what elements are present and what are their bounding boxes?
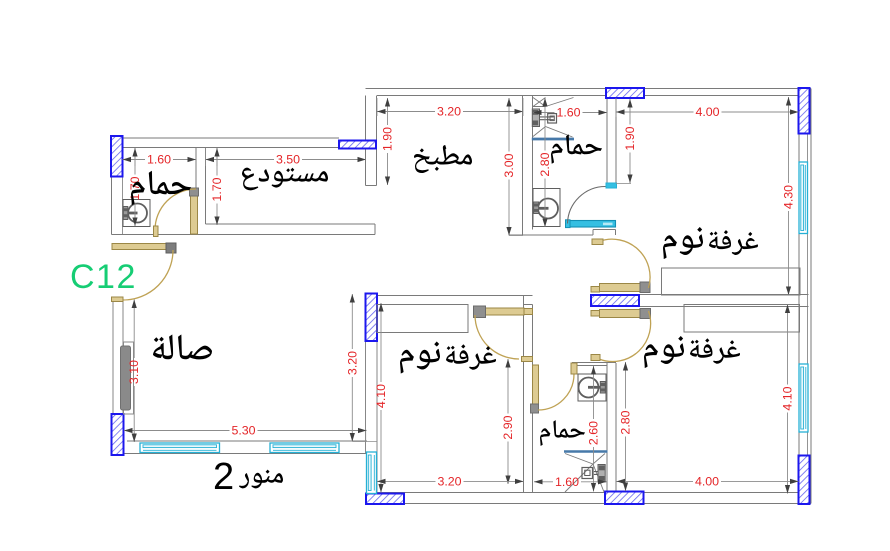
svg-text:1.70: 1.70 bbox=[128, 176, 142, 200]
svg-text:4.10: 4.10 bbox=[374, 384, 388, 408]
svg-text:2: 2 bbox=[213, 456, 234, 498]
svg-text:C12: C12 bbox=[70, 258, 137, 296]
svg-text:1.60: 1.60 bbox=[147, 153, 171, 167]
svg-text:2.80: 2.80 bbox=[538, 152, 552, 176]
svg-text:4.00: 4.00 bbox=[695, 474, 719, 488]
svg-text:4.30: 4.30 bbox=[782, 185, 796, 209]
svg-text:1.70: 1.70 bbox=[210, 177, 224, 201]
svg-text:2.90: 2.90 bbox=[501, 415, 515, 439]
svg-text:5.30: 5.30 bbox=[231, 424, 255, 438]
svg-text:1.90: 1.90 bbox=[381, 127, 395, 151]
svg-text:4.10: 4.10 bbox=[781, 386, 795, 410]
svg-text:3.00: 3.00 bbox=[502, 153, 516, 177]
svg-text:1.60: 1.60 bbox=[556, 106, 580, 120]
svg-text:4.00: 4.00 bbox=[695, 105, 719, 119]
svg-text:3.10: 3.10 bbox=[127, 360, 141, 384]
svg-text:1.90: 1.90 bbox=[623, 126, 637, 150]
svg-text:3.50: 3.50 bbox=[276, 153, 300, 167]
svg-text:2.80: 2.80 bbox=[619, 410, 633, 434]
svg-text:3.20: 3.20 bbox=[345, 351, 359, 375]
svg-text:1.60: 1.60 bbox=[555, 475, 579, 489]
svg-text:3.20: 3.20 bbox=[437, 474, 461, 488]
svg-text:2.60: 2.60 bbox=[587, 421, 601, 445]
svg-text:3.20: 3.20 bbox=[437, 105, 461, 119]
